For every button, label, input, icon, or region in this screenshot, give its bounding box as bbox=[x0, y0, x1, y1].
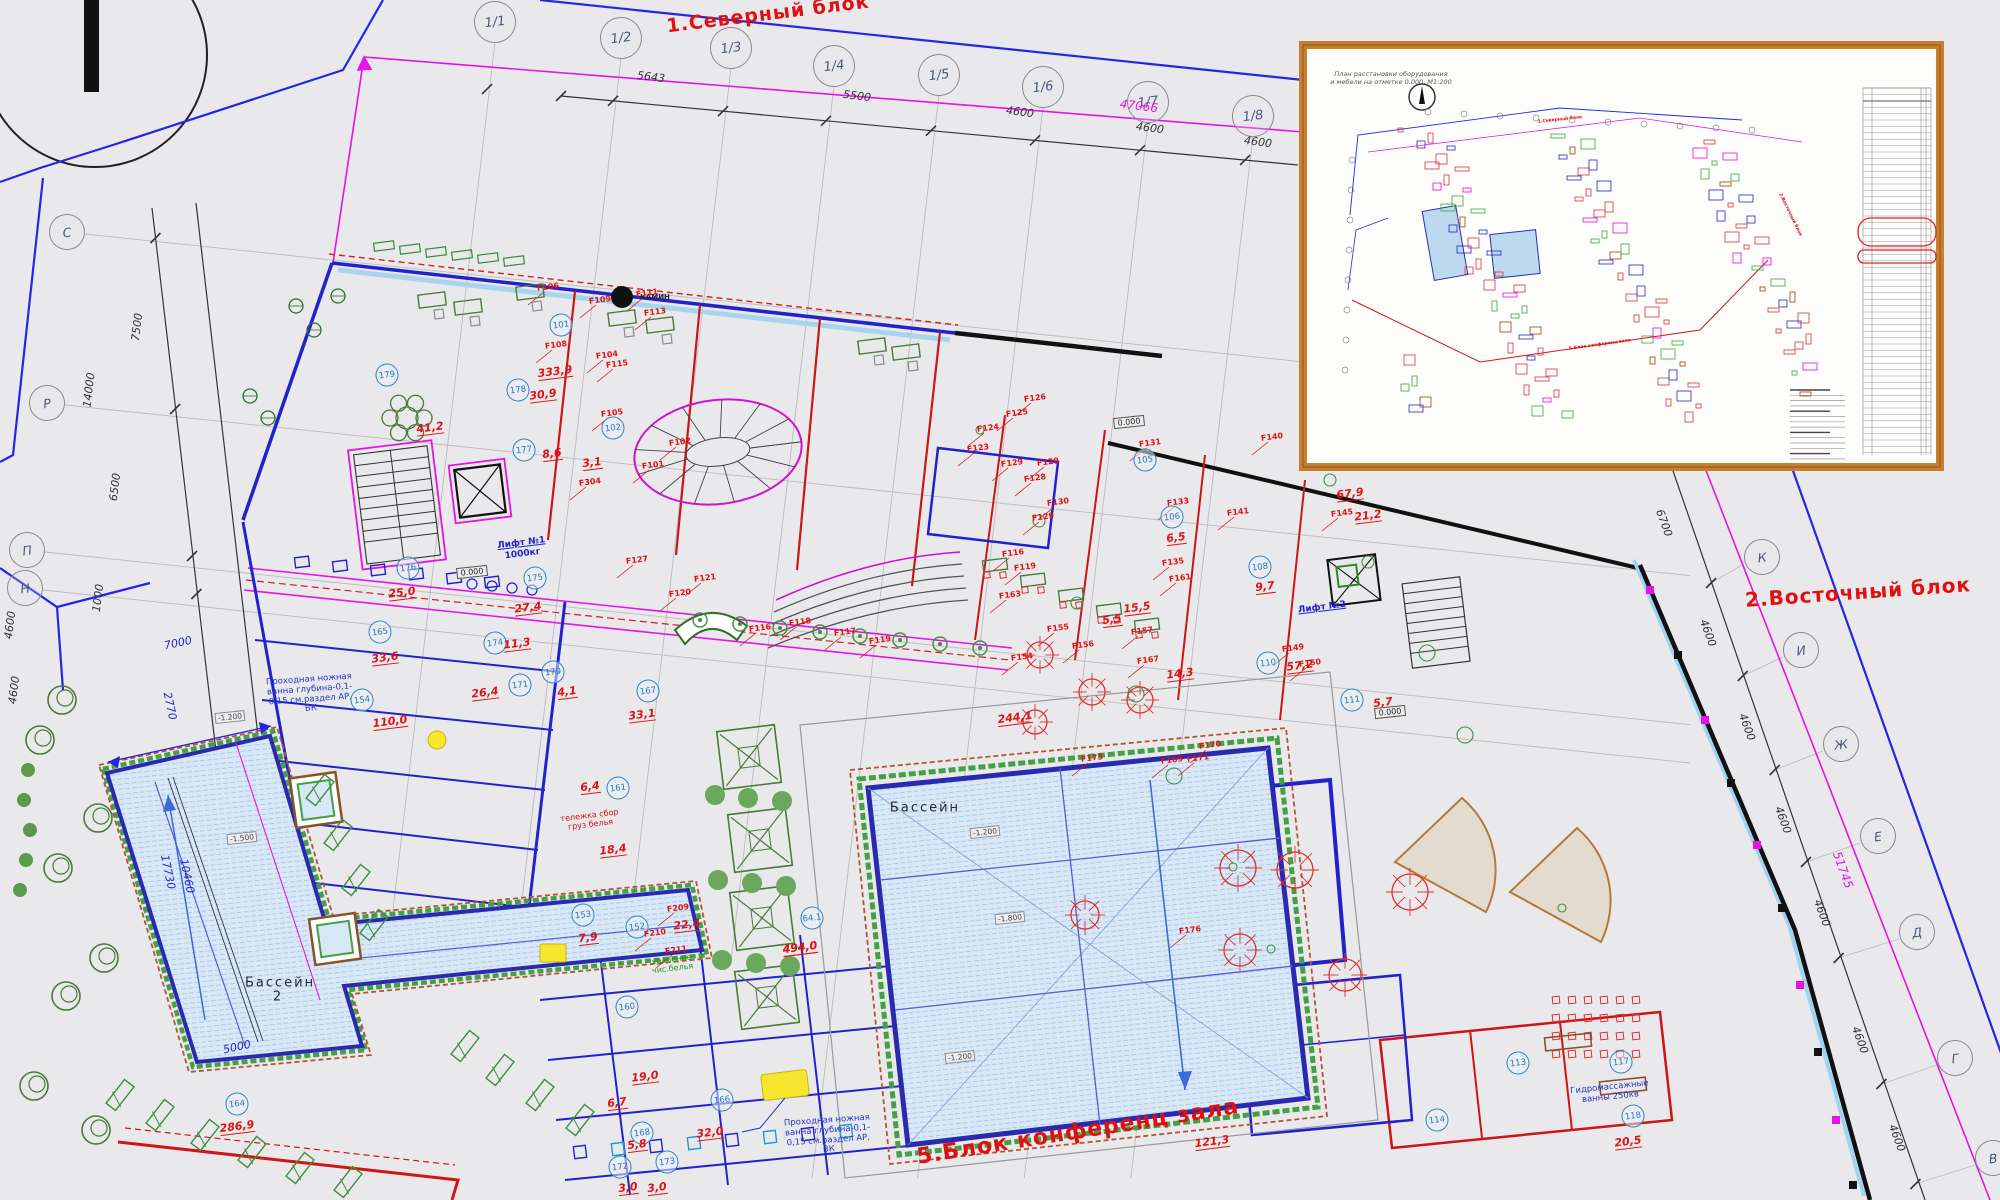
furniture-code-F116-14: F116 bbox=[1001, 547, 1024, 559]
dim-label-12: 6700 bbox=[1653, 508, 1675, 539]
dim-label-3: 4600 bbox=[1135, 120, 1164, 136]
room-bubble-106: 106 bbox=[1159, 504, 1185, 530]
room-bubble-117: 117 bbox=[1608, 1049, 1634, 1075]
area-label-32: 9,7 bbox=[1254, 579, 1275, 595]
room-bubble-178: 178 bbox=[505, 377, 531, 403]
area-label-33: 15,5 bbox=[1123, 599, 1152, 616]
room-bubble-111: 111 bbox=[1339, 687, 1365, 713]
inset-title-line2: и мебели на отметке 0.000, М1:200 bbox=[1330, 78, 1451, 86]
furniture-code-F119-13: F119 bbox=[868, 634, 891, 646]
grid-bubble-1-4: 1/4 bbox=[811, 43, 858, 90]
furniture-code-F128-23: F128 bbox=[1023, 472, 1046, 484]
area-label-17: 19,0 bbox=[631, 1068, 660, 1085]
area-label-30: 5,5 bbox=[1101, 612, 1122, 628]
grid-bubble-И: И bbox=[1781, 630, 1821, 670]
furniture-code-F156-38: F156 bbox=[1071, 639, 1094, 651]
room-bubble-101: 101 bbox=[548, 312, 574, 338]
foot-bath-note-bottom: Проходная ножная ванна глубина-0,1-0,15 … bbox=[780, 1113, 876, 1159]
furniture-code-F127-18: F127 bbox=[625, 554, 648, 566]
furniture-code-F129-24: F129 bbox=[1000, 457, 1023, 469]
room-bubble-170: 170 bbox=[540, 659, 566, 685]
room-bubble-114: 114 bbox=[1424, 1107, 1450, 1133]
dim-label-8: 6500 bbox=[107, 472, 123, 501]
area-label-16: 22,4 bbox=[673, 916, 702, 933]
furniture-code-F173-46: F173 bbox=[1080, 752, 1103, 764]
area-label-21: 3,0 bbox=[617, 1180, 638, 1196]
furniture-code-F140-31: F140 bbox=[1260, 431, 1283, 443]
furniture-code-F121-17: F121 bbox=[693, 572, 716, 584]
furniture-code-F116-10: F116 bbox=[748, 622, 771, 634]
grid-bubble-1-6: 1/6 bbox=[1020, 64, 1067, 111]
area-label-7: 11,3 bbox=[503, 635, 532, 652]
inset-mini-label-0: 1.Северный блок bbox=[1537, 115, 1582, 125]
grid-bubble-Е: Е bbox=[1858, 816, 1898, 856]
grid-bubble-С: С bbox=[47, 212, 87, 252]
area-label-14: 18,4 bbox=[599, 841, 628, 858]
area-label-1: 41,2 bbox=[416, 419, 445, 436]
furniture-code-F150-35: F150 bbox=[1298, 657, 1321, 669]
grid-bubble-В: В bbox=[1973, 1138, 2000, 1178]
inset-title: План расстановки оборудования и мебели н… bbox=[1326, 70, 1456, 87]
title-north-block: 1.Северный блок bbox=[665, 0, 870, 37]
area-label-18: 6,7 bbox=[606, 1095, 627, 1111]
linen-storage-note: хранение чис.белья bbox=[641, 951, 703, 977]
furniture-code-F129-25: F129 bbox=[1036, 456, 1059, 468]
room-bubble-153: 153 bbox=[570, 902, 596, 928]
area-label-34: 244,1 bbox=[997, 709, 1033, 727]
dim-label-10: 4600 bbox=[2, 610, 18, 639]
room-bubble-161: 161 bbox=[605, 775, 631, 801]
furniture-code-F117-11: F117 bbox=[833, 626, 856, 638]
dim-label-9: 1000 bbox=[90, 583, 106, 612]
dim-label-0: 5643 bbox=[636, 69, 665, 85]
furniture-code-F115-9: F115 bbox=[605, 358, 628, 370]
dim-label-2: 4600 bbox=[1005, 104, 1034, 120]
dim-label-15: 4600 bbox=[1772, 805, 1794, 836]
furniture-code-F126-22: F126 bbox=[1023, 392, 1046, 404]
depth-mark-2: -1.200 bbox=[944, 1050, 975, 1064]
grid-bubble-Р: Р bbox=[27, 383, 67, 423]
room-bubble-177: 177 bbox=[511, 437, 537, 463]
room-bubble-166: 166 bbox=[709, 1087, 735, 1113]
room-bubble-108: 108 bbox=[1247, 554, 1273, 580]
furniture-code-F102-1: F102 bbox=[668, 436, 691, 448]
furniture-code-F169-43: F169 bbox=[1160, 754, 1183, 766]
cad-floor-plan-viewport[interactable]: 1.Северный блок 2.Восточный блок 5.Блок … bbox=[0, 0, 2000, 1200]
dim-label-20: 7000 bbox=[163, 634, 193, 653]
furniture-code-F125-21: F125 bbox=[1005, 407, 1028, 419]
room-bubble-113: 113 bbox=[1505, 1050, 1531, 1076]
area-label-22: 3,0 bbox=[646, 1180, 667, 1196]
furniture-code-F135-30: F135 bbox=[1161, 556, 1184, 568]
area-label-36: 20,5 bbox=[1614, 1133, 1643, 1150]
area-label-6: 27,4 bbox=[514, 599, 543, 616]
laundry-cart-note: тележка сбор груз белья bbox=[559, 807, 621, 833]
furniture-code-F171-45: F171 bbox=[1186, 752, 1209, 764]
furniture-code-F119-15: F119 bbox=[1013, 561, 1036, 573]
grid-bubble-1-1: 1/1 bbox=[472, 0, 519, 45]
furniture-code-F161-40: F161 bbox=[1168, 572, 1191, 584]
area-label-31: 6,5 bbox=[1165, 530, 1186, 546]
depth-mark-4: -1.500 bbox=[226, 831, 257, 845]
room-bubble-179: 179 bbox=[374, 362, 400, 388]
furniture-code-F118-12: F118 bbox=[788, 616, 811, 628]
furniture-code-F170-44: F170 bbox=[1198, 739, 1221, 751]
furniture-code-F133-29: F133 bbox=[1166, 496, 1189, 508]
foot-bath-note-left: Проходная ножная ванна глубина-0,1-0,15 … bbox=[262, 672, 358, 718]
grid-bubble-Ж: Ж bbox=[1821, 724, 1861, 764]
inset-title-line1: План расстановки оборудования bbox=[1334, 70, 1447, 78]
room-bubble-175: 175 bbox=[522, 565, 548, 591]
room-bubble-110: 110 bbox=[1255, 650, 1281, 676]
grid-bubble-Н: Н bbox=[5, 568, 45, 608]
depth-mark-1: -1.800 bbox=[994, 911, 1025, 925]
dim-label-11: 4600 bbox=[6, 675, 22, 704]
room-bubble-165: 165 bbox=[367, 619, 393, 645]
secondary-pool-label: Бассейн 2 bbox=[245, 977, 311, 1006]
area-label-35: 121,3 bbox=[1194, 1133, 1230, 1151]
furniture-code-F124-20: F124 bbox=[976, 422, 999, 434]
grid-bubble-1-5: 1/5 bbox=[916, 52, 963, 99]
dim-label-13: 4600 bbox=[1697, 618, 1719, 649]
furniture-code-F167-42: F167 bbox=[1136, 654, 1159, 666]
furniture-code-F155-37: F155 bbox=[1046, 622, 1069, 634]
room-bubble-167: 167 bbox=[635, 678, 661, 704]
hydro-baths-note: Гидромассажные ванны 250кв bbox=[1569, 1079, 1651, 1107]
furniture-code-F106-4: F106 bbox=[536, 281, 559, 293]
room-bubble-118: 118 bbox=[1620, 1103, 1646, 1129]
lift2-name: Лифт №2 bbox=[1297, 600, 1346, 616]
room-bubble-172: 172 bbox=[607, 1154, 633, 1180]
furniture-code-F176-47: F176 bbox=[1178, 924, 1201, 936]
grid-bubble-П: П bbox=[7, 530, 47, 570]
inset-mini-label-1: 2.Восточный блок bbox=[1777, 193, 1802, 238]
grid-bubble-Д: Д bbox=[1897, 912, 1937, 952]
dim-label-22: 17730 bbox=[158, 854, 178, 891]
lift1-label: Лифт №1 1000кг bbox=[497, 535, 547, 562]
area-label-13: 6,4 bbox=[579, 779, 600, 795]
depth-mark-0: -1.200 bbox=[969, 825, 1000, 839]
area-label-3: 8,6 bbox=[541, 446, 562, 462]
furniture-code-F157-39: F157 bbox=[1130, 625, 1153, 637]
area-label-29: 14,3 bbox=[1166, 665, 1195, 682]
room-bubble-176: 176 bbox=[395, 555, 421, 581]
furniture-code-F209-48: F209 bbox=[666, 902, 689, 914]
grid-bubble-1-8: 1/8 bbox=[1230, 93, 1277, 140]
furniture-code-F304-51: F304 bbox=[578, 476, 601, 488]
title-conference-block: 5.Блок конференц зала bbox=[915, 1094, 1241, 1170]
dim-label-19: 51745 bbox=[1830, 850, 1856, 891]
room-bubble-160: 160 bbox=[614, 994, 640, 1020]
grid-bubble-К: К bbox=[1742, 537, 1782, 577]
main-pool-label: Бассейн bbox=[890, 801, 960, 816]
furniture-code-F210-49: F210 bbox=[643, 927, 666, 939]
room-bubble-102: 102 bbox=[600, 415, 626, 441]
area-label-19: 32,0 bbox=[696, 1124, 725, 1141]
area-label-25: 67,9 bbox=[1336, 485, 1365, 502]
inset-mini-label-2: 5.Блок конференц зала bbox=[1569, 338, 1631, 352]
furniture-code-F120-16: F120 bbox=[668, 587, 691, 599]
room-bubble-173: 173 bbox=[654, 1149, 680, 1175]
level-mark-0: 0.000 bbox=[456, 565, 488, 579]
area-label-2: 30,9 bbox=[529, 386, 558, 403]
room-bubble-164: 164 bbox=[224, 1091, 250, 1117]
furniture-code-F129-26: F129 bbox=[1031, 511, 1054, 523]
grid-bubble-Г: Г bbox=[1935, 1038, 1975, 1078]
level-mark-2: 0.000 bbox=[1374, 705, 1406, 719]
furniture-code-F141-32: F141 bbox=[1226, 506, 1249, 518]
dim-label-16: 4600 bbox=[1811, 898, 1833, 929]
dim-label-4: 4600 bbox=[1243, 134, 1272, 150]
lift2-label: Лифт №2 bbox=[1297, 600, 1346, 617]
area-label-26: 21,2 bbox=[1354, 507, 1383, 524]
furniture-code-F149-34: F149 bbox=[1281, 642, 1304, 654]
furniture-code-F108-5: F108 bbox=[544, 339, 567, 351]
area-label-5: 25,0 bbox=[388, 584, 417, 601]
room-bubble-105: 105 bbox=[1132, 447, 1158, 473]
furniture-code-F145-33: F145 bbox=[1330, 507, 1353, 519]
dim-label-17: 4600 bbox=[1849, 1025, 1871, 1056]
area-label-15: 7,9 bbox=[577, 930, 598, 946]
furniture-code-F113-8: F113 bbox=[643, 306, 666, 318]
area-label-9: 4,1 bbox=[556, 684, 577, 700]
area-label-8: 26,4 bbox=[471, 684, 500, 701]
annotation-layer: 1.Северный блок 2.Восточный блок 5.Блок … bbox=[0, 0, 2000, 1200]
depth-mark-3: -1.200 bbox=[214, 710, 245, 724]
dim-label-6: 7500 bbox=[129, 312, 145, 341]
room-bubble-171: 171 bbox=[507, 672, 533, 698]
furniture-code-F101-0: F101 bbox=[641, 459, 664, 471]
furniture-code-F123-19: F123 bbox=[966, 442, 989, 454]
area-label-0: 333,9 bbox=[537, 363, 573, 381]
area-label-10: 33,1 bbox=[628, 706, 657, 723]
furniture-code-F105-3: F105 bbox=[600, 407, 623, 419]
dim-label-18: 4600 bbox=[1886, 1123, 1908, 1154]
area-label-11: 33,6 bbox=[371, 649, 400, 666]
furniture-code-F131-28: F131 bbox=[1138, 437, 1161, 449]
dim-label-23: 10460 bbox=[177, 858, 197, 895]
furniture-code-F130-27: F130 bbox=[1046, 496, 1069, 508]
area-label-20: 5,8 bbox=[626, 1137, 647, 1153]
area-label-12: 110,0 bbox=[372, 713, 408, 731]
dim-label-14: 4600 bbox=[1736, 712, 1758, 743]
furniture-code-F154-36: F154 bbox=[1010, 651, 1033, 663]
dim-label-21: 2770 bbox=[161, 691, 180, 721]
area-label-4: 3,1 bbox=[581, 455, 602, 471]
grid-bubble-1-2: 1/2 bbox=[598, 15, 645, 62]
furniture-code-F109-6: F109 bbox=[588, 294, 611, 306]
dim-label-1: 5500 bbox=[842, 88, 871, 104]
furniture-code-F163-41: F163 bbox=[998, 589, 1021, 601]
area-label-24: 286,9 bbox=[219, 1118, 255, 1136]
dim-label-7: 14000 bbox=[80, 372, 97, 408]
title-east-block: 2.Восточный блок bbox=[1744, 572, 1971, 612]
main-pool-area: 494,0 bbox=[782, 939, 818, 957]
dim-label-24: 5000 bbox=[222, 1038, 252, 1057]
level-mark-1: 0.000 bbox=[1113, 415, 1145, 429]
room-bubble-64.1: 64.1 bbox=[799, 905, 825, 931]
